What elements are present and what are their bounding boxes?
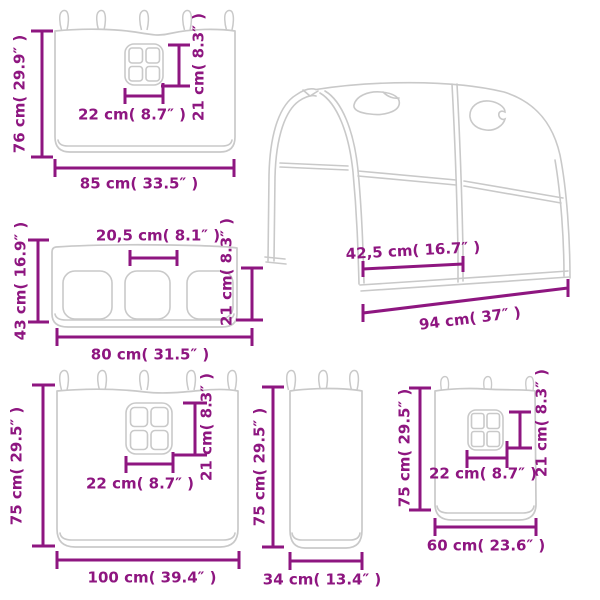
- tab-loop: [60, 370, 69, 390]
- dim-label-panel80-window-height: 21 cm( 8.3″ ): [220, 218, 235, 326]
- tab-loop: [140, 10, 149, 30]
- dimension-line-height: [31, 31, 53, 157]
- tab-loop: [287, 370, 296, 390]
- panel-outline: [55, 29, 235, 152]
- dimension-line-width: [57, 551, 239, 569]
- dim-label-curtain60-height: 75 cm( 29.5″ ): [398, 389, 413, 507]
- tunnel-window-left: [354, 92, 399, 115]
- dim-label-panel34-height: 75 cm( 29.5″ ): [253, 408, 268, 526]
- tab-loop: [140, 370, 149, 390]
- dim-label-curtain85-window-width: 22 cm( 8.7″ ): [78, 108, 186, 123]
- product-line-art: [0, 0, 600, 600]
- dimension-line-height: [28, 240, 49, 322]
- panel-34x75-drawing: [287, 370, 362, 548]
- dimension-diagram: 76 cm( 29.9″ ) 85 cm( 33.5″ ) 22 cm( 8.7…: [0, 0, 600, 600]
- tunnel-bottom-hem: [360, 271, 569, 291]
- tab-loop: [60, 10, 69, 30]
- tunnel-horizontal-seam-left: [358, 171, 456, 185]
- dim-label-panel34-width: 34 cm( 13.4″ ): [263, 573, 381, 588]
- dim-label-curtain100-window-height: 21 cm( 8.3″ ): [200, 373, 215, 481]
- dim-label-curtain100-width: 100 cm( 39.4″ ): [88, 571, 217, 586]
- tunnel-window-right: [470, 101, 505, 130]
- panel-outline: [435, 389, 536, 520]
- dim-label-curtain100-window-width: 22 cm( 8.7″ ): [86, 477, 194, 492]
- dim-label-curtain85-height: 76 cm( 29.9″ ): [13, 35, 28, 153]
- tunnel-right-inner-edge: [555, 160, 564, 276]
- dimension-line-width: [57, 328, 252, 346]
- tab-loop: [228, 370, 237, 390]
- tunnel-apex-fold: [303, 90, 318, 96]
- dim-label-panel80-height: 43 cm( 16.9″ ): [14, 222, 29, 340]
- tab-loop: [350, 370, 359, 390]
- curtain-85x76-drawing: [55, 10, 235, 152]
- dim-label-panel80-window-width: 20,5 cm( 8.1″ ): [96, 229, 220, 244]
- dim-label-curtain60-width: 60 cm( 23.6″ ): [427, 539, 545, 554]
- tab-loop: [225, 10, 234, 30]
- tunnel-drawing: [265, 83, 570, 291]
- dim-label-curtain60-window-width: 22 cm( 8.7″ ): [429, 467, 537, 482]
- tab-loop: [98, 370, 107, 390]
- tab-loop: [319, 370, 328, 390]
- tunnel-horizontal-seam-right: [464, 181, 563, 203]
- dim-label-curtain60-window-height: 21 cm( 8.3″ ): [535, 369, 550, 477]
- dimension-line-height: [32, 385, 55, 546]
- dimension-line-width: [290, 552, 362, 570]
- dim-label-curtain85-width: 85 cm( 33.5″ ): [80, 177, 198, 192]
- panel-outline: [290, 389, 362, 548]
- tunnel-front-arch-inner: [274, 96, 316, 261]
- tab-loop: [97, 10, 106, 30]
- tab-loops: [287, 370, 359, 390]
- dim-label-curtain100-height: 75 cm( 29.5″ ): [10, 407, 25, 525]
- tunnel-opening-crossbar: [280, 163, 348, 170]
- dim-label-curtain85-window-height: 21 cm( 8.3″ ): [192, 13, 207, 121]
- tab-loop: [187, 370, 196, 390]
- dim-label-panel80-width: 80 cm( 31.5″ ): [91, 348, 209, 363]
- dimension-line-window-height: [236, 268, 263, 320]
